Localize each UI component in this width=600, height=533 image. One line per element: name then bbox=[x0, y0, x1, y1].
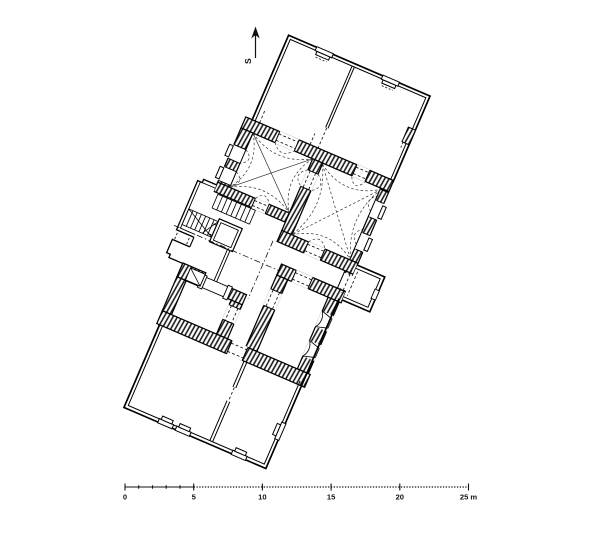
svg-text:S: S bbox=[243, 58, 253, 64]
svg-text:15: 15 bbox=[327, 493, 336, 502]
svg-text:20: 20 bbox=[396, 493, 404, 502]
svg-text:0: 0 bbox=[123, 493, 127, 502]
svg-text:10: 10 bbox=[258, 493, 266, 502]
svg-text:25 m: 25 m bbox=[460, 493, 478, 502]
